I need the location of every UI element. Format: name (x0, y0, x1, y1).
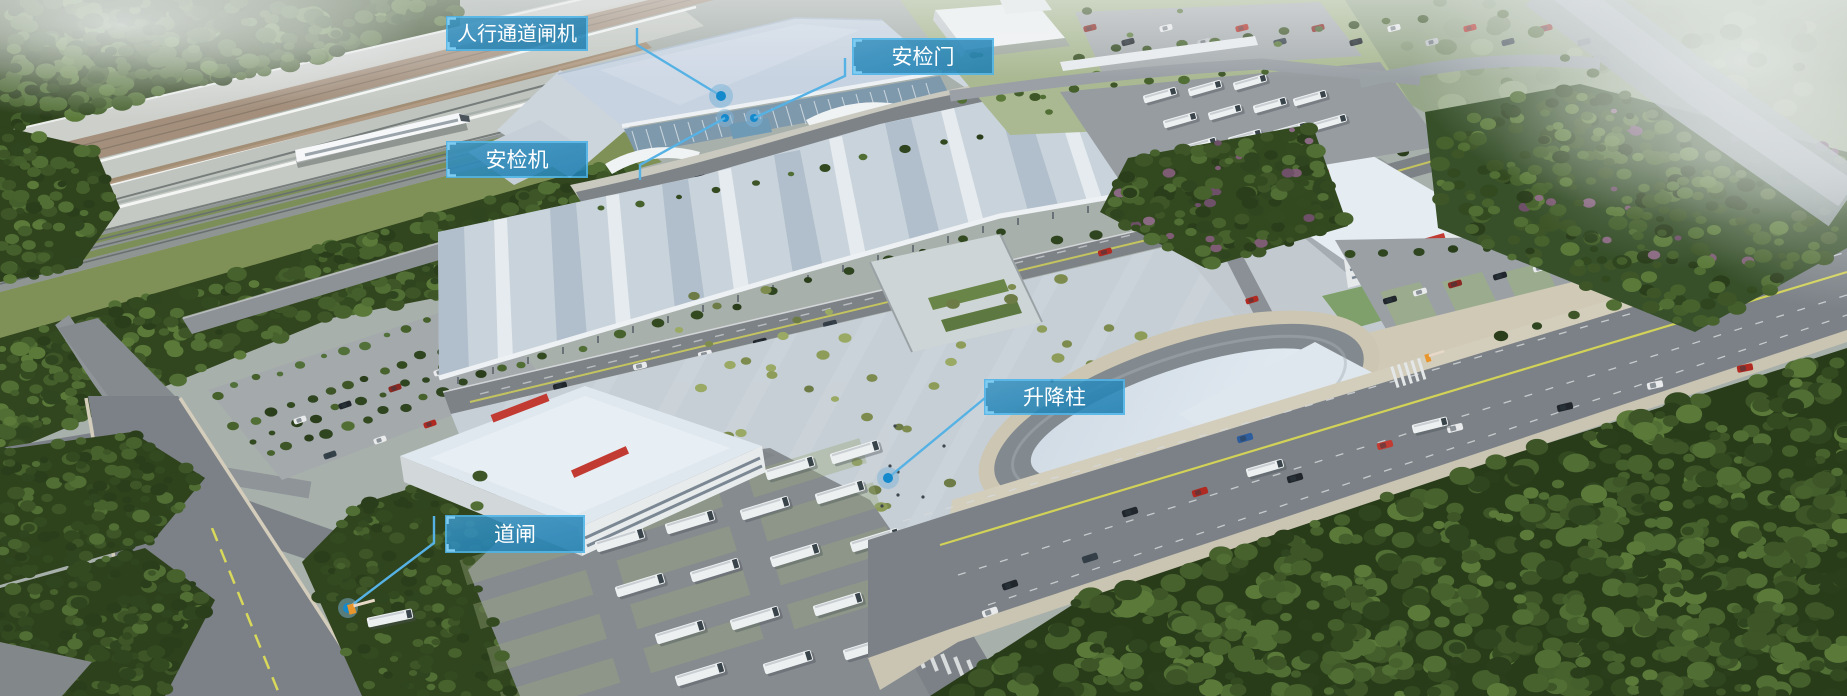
svg-text:道闸: 道闸 (494, 524, 536, 547)
svg-text:升降柱: 升降柱 (1023, 387, 1086, 410)
svg-text:安检机: 安检机 (486, 149, 549, 172)
svg-text:人行通道闸机: 人行通道闸机 (457, 23, 577, 46)
svg-text:安检门: 安检门 (892, 46, 955, 69)
